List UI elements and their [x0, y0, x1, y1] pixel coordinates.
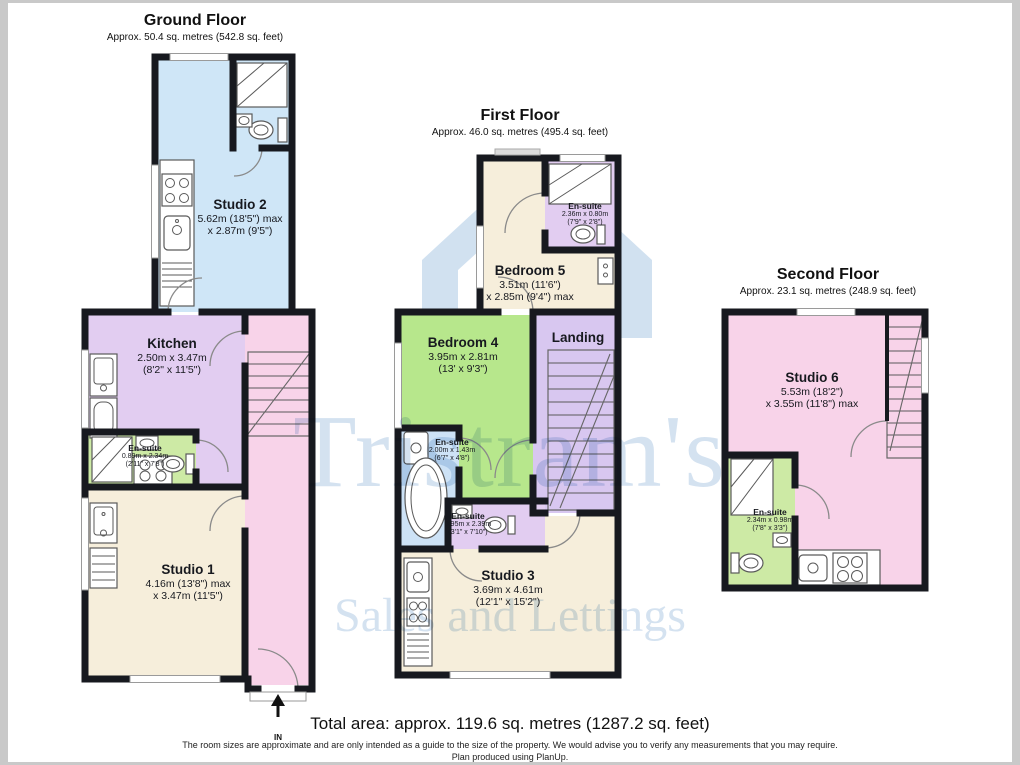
studio1-label: Studio 1 4.16m (13'8") max x 3.47m (11'5… — [108, 562, 268, 603]
kitchen-window — [82, 350, 89, 428]
ff-ensuite-low-label: En-suite 0.95m x 2.39m (3'1" x 7'10") — [428, 511, 508, 536]
bedroom5-label: Bedroom 5 3.51m (11'6") x 2.85m (9'4") m… — [450, 263, 610, 304]
kitchen-label: Kitchen 2.50m x 3.47m (8'2" x 11'5") — [97, 336, 247, 377]
floorplan-page: Ground Floor Approx. 50.4 sq. metres (54… — [0, 0, 1020, 765]
second-floor-plan — [713, 303, 938, 603]
bedroom4-label: Bedroom 4 3.95m x 2.81m (13' x 9'3") — [388, 335, 538, 376]
disclaimer-text: The room sizes are approximate and are o… — [0, 740, 1020, 750]
ground-floor-name: Ground Floor — [75, 12, 315, 30]
sf-kitchenette-icon — [795, 550, 880, 585]
first-floor-name: First Floor — [400, 107, 640, 125]
first-floor-title: First Floor Approx. 46.0 sq. metres (495… — [400, 107, 640, 138]
studio1-window — [130, 676, 220, 683]
studio3-label: Studio 3 3.69m x 4.61m (12'1" x 15'2") — [428, 568, 588, 609]
ground-floor-area: Approx. 50.4 sq. metres (542.8 sq. feet) — [75, 32, 315, 43]
gf-ensuite-label: En-suite 0.89m x 2.34m (2'11" x 7'8") — [105, 443, 185, 468]
sf-ensuite-sink-icon — [773, 533, 791, 547]
total-area-text: Total area: approx. 119.6 sq. metres (12… — [0, 714, 1020, 734]
sf-ensuite-toilet-icon — [731, 553, 763, 573]
second-floor-area: Approx. 23.1 sq. metres (248.9 sq. feet) — [708, 286, 948, 297]
bathroom-shower-icon — [237, 63, 287, 107]
frame-left — [0, 0, 8, 765]
ff-ensuite-top-label: En-suite 2.36m x 0.80m (7'9" x 2'8") — [545, 201, 625, 226]
landing-label: Landing — [518, 330, 638, 346]
studio3-window — [450, 672, 550, 679]
hallway-area — [245, 315, 309, 685]
studio1-side-window — [82, 498, 89, 590]
second-floor-name: Second Floor — [708, 266, 948, 284]
bathroom-sink-icon — [236, 114, 252, 127]
ff-ensuite-top-toilet-icon — [571, 225, 605, 244]
ground-floor-title: Ground Floor Approx. 50.4 sq. metres (54… — [75, 12, 315, 43]
studio2-label: Studio 2 5.62m (18'5") max x 2.87m (9'5"… — [160, 197, 320, 238]
ff-ensuite-mid-label: En-suite 2.00m x 1.43m (6'7" x 4'8") — [412, 437, 492, 462]
studio6-label: Studio 6 5.53m (18'2") x 3.55m (11'8") m… — [732, 370, 892, 411]
studio6-side-window — [922, 338, 929, 393]
studio6-window — [797, 309, 855, 316]
studio2-window — [170, 54, 228, 61]
ff-ensuite-top-shower-icon — [549, 164, 611, 204]
frame-top — [0, 0, 1020, 3]
studio1-sink-icon — [90, 503, 117, 543]
producer-text: Plan produced using PlanUp. — [0, 752, 1020, 762]
second-floor-title: Second Floor Approx. 23.1 sq. metres (24… — [708, 266, 948, 297]
first-floor-area: Approx. 46.0 sq. metres (495.4 sq. feet) — [400, 127, 640, 138]
roof-window-sill — [495, 149, 540, 155]
frame-right — [1012, 0, 1020, 765]
studio2-side-window — [152, 165, 159, 258]
sf-ensuite-label: En-suite 2.34m x 0.98m (7'8" x 3'3") — [730, 507, 810, 532]
ff-ensuite-top-window — [560, 155, 605, 162]
ground-floor-plan — [72, 48, 322, 738]
